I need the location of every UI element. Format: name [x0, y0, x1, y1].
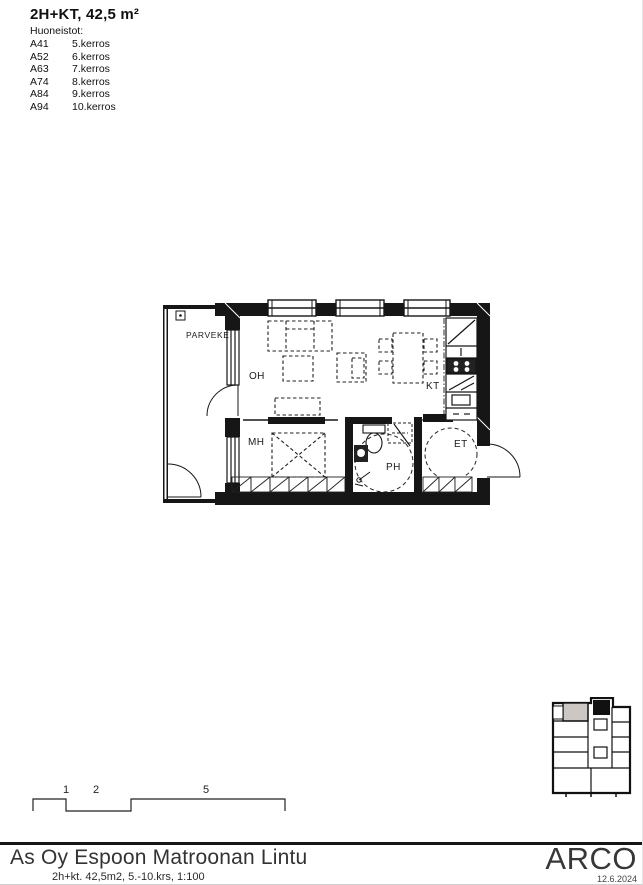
sideboard: [275, 398, 320, 415]
wardrobes: [232, 477, 345, 492]
unit-row: A74 8.kerros: [30, 76, 160, 88]
entry-closets: [423, 477, 472, 492]
unit-code: A94: [30, 101, 49, 113]
room-label-entry: ET: [454, 439, 468, 450]
drawing-details: 2h+kt. 42,5m2, 5.-10.krs, 1:100: [52, 871, 205, 883]
unit-floor: 6.kerros: [72, 51, 110, 63]
facade-windows: [268, 300, 450, 316]
room-label-living: OH: [249, 371, 265, 382]
scale-bar: 1 2 5: [28, 782, 290, 816]
keyplan-highlight-unit: [563, 703, 588, 721]
unit-row: A52 6.kerros: [30, 51, 160, 63]
entry-door-swing: [487, 444, 520, 477]
coffee-table: [283, 356, 313, 381]
scale-label-1: 1: [63, 784, 69, 796]
sofa: [268, 321, 332, 351]
room-label-bedroom: MH: [248, 437, 264, 448]
drawing-date: 12.6.2024: [597, 874, 637, 884]
unit-row: A41 5.kerros: [30, 38, 160, 50]
room-label-balcony: PARVEKE: [186, 330, 230, 340]
project-name: As Oy Espoon Matroonan Lintu: [10, 846, 307, 870]
unit-floor: 10.kerros: [72, 101, 116, 113]
room-label-kitchen: KT: [426, 381, 440, 392]
apartment-type-title: 2H+KT, 42,5 m²: [30, 6, 139, 23]
keyplan-stairwell: [593, 700, 610, 715]
unit-code: A63: [30, 63, 49, 75]
scale-label-2: 2: [93, 784, 99, 796]
unit-row: A63 7.kerros: [30, 63, 160, 75]
unit-floor: 7.kerros: [72, 63, 110, 75]
washing-machine: [388, 423, 412, 443]
balcony-windows: [227, 330, 239, 483]
unit-floor: 9.kerros: [72, 88, 110, 100]
balcony-door-swing: [207, 385, 238, 416]
kitchen-fixtures: [422, 318, 477, 420]
scale-label-5: 5: [203, 784, 209, 796]
room-label-bathroom: PH: [386, 462, 401, 473]
unit-row: A84 9.kerros: [30, 88, 160, 100]
bed: [272, 433, 325, 477]
key-plan: [551, 697, 633, 799]
armchair: [337, 353, 366, 382]
unit-code: A74: [30, 76, 49, 88]
unit-floor: 8.kerros: [72, 76, 110, 88]
unit-row: A94 10.kerros: [30, 101, 160, 113]
unit-list-heading: Huoneistot:: [30, 25, 83, 37]
unit-code: A52: [30, 51, 49, 63]
unit-code: A41: [30, 38, 49, 50]
unit-code: A84: [30, 88, 49, 100]
bathroom-door-leaf: [394, 424, 410, 446]
unit-floor: 5.kerros: [72, 38, 110, 50]
plan-sheet-page: 2H+KT, 42,5 m² Huoneistot: A41 5.kerros …: [0, 0, 643, 885]
dining-set: [379, 333, 437, 383]
arco-logo: ARCO: [545, 841, 637, 877]
turning-circle-entry: [425, 428, 477, 480]
floor-plan-drawing: [160, 296, 530, 516]
